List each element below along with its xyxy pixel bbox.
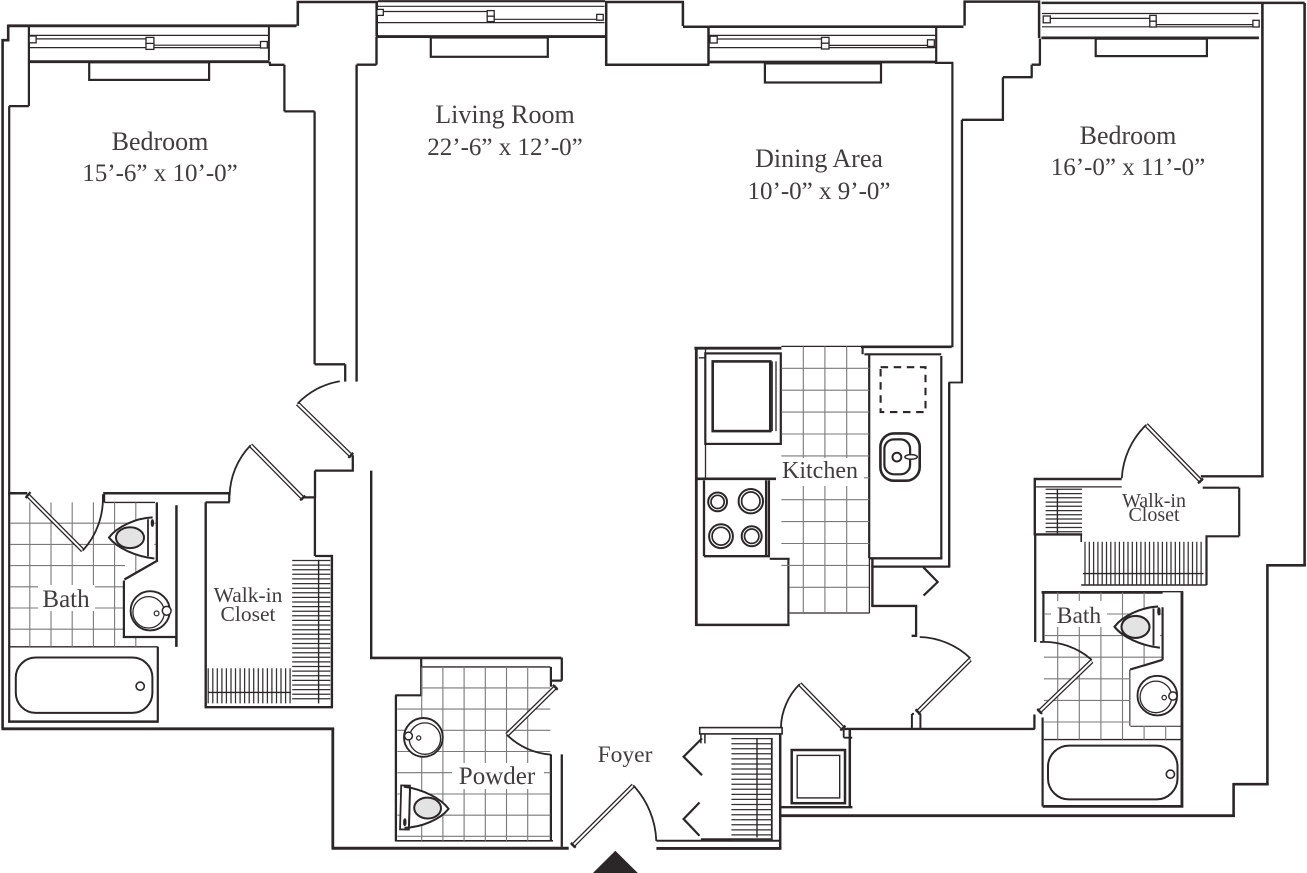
svg-text:Foyer: Foyer [598,742,653,768]
svg-text:Dining Area: Dining Area [755,144,883,173]
svg-text:Bath: Bath [1057,603,1102,629]
svg-text:Powder: Powder [459,763,536,790]
svg-text:10’-0” x 9’-0”: 10’-0” x 9’-0” [748,178,891,205]
svg-text:16’-0” x 11’-0”: 16’-0” x 11’-0” [1051,154,1206,181]
svg-text:Kitchen: Kitchen [782,458,858,484]
svg-text:Bedroom: Bedroom [112,127,209,156]
svg-text:Closet: Closet [1128,504,1180,526]
svg-text:Bedroom: Bedroom [1080,121,1177,150]
svg-text:15’-6” x 10’-0”: 15’-6” x 10’-0” [82,160,238,187]
svg-text:22’-6” x 12’-0”: 22’-6” x 12’-0” [427,134,583,161]
svg-text:Bath: Bath [42,586,90,613]
svg-text:Living Room: Living Room [435,100,574,129]
svg-text:Closet: Closet [221,602,276,626]
